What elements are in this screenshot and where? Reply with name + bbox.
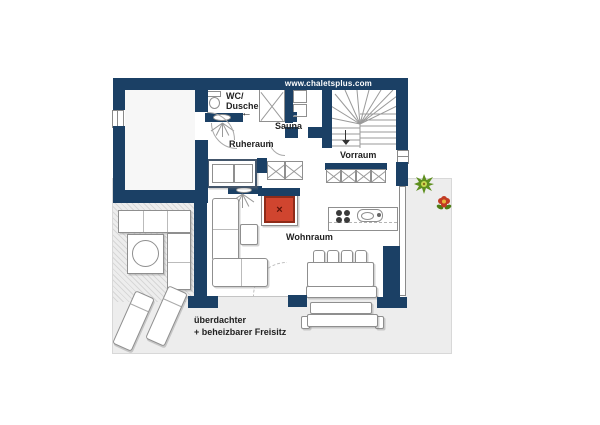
wall [383,246,400,297]
outdoor-corner-bench-side [167,233,191,290]
terrace-table [310,302,372,314]
wall [195,90,208,112]
wardrobe-small [267,161,303,180]
room-label-wc-line1: WC/ [226,91,259,101]
sofa-chaise [212,198,239,261]
glass-front [399,186,406,296]
dining-table [307,262,374,287]
terrace-label-line2: + beheizbarer Freisitz [194,326,286,338]
stove-top-bar [258,188,300,196]
dining-bench-inner [306,286,377,298]
room-label-wohnraum: Wohnraum [286,232,333,242]
stove-burner-icon [344,217,350,223]
wall [322,90,332,148]
staircase [331,90,397,148]
wardrobe-vorraum [326,169,386,183]
room-label-wc: WC/ Dusche [226,91,259,111]
ruheraum-lounger [207,159,257,188]
wall [257,158,267,173]
wood-stove: × [264,196,295,223]
stove-burner-icon [336,210,342,216]
outdoor-corner-bench-top [118,210,191,233]
shower [259,89,285,122]
sofa-base [212,258,268,287]
wall [288,295,307,307]
wall [285,88,293,123]
stairs-direction-arrow [345,130,346,140]
room-label-ruheraum: Ruheraum [229,139,274,149]
wall [195,140,208,190]
wall [396,78,408,150]
toilet-bowl [209,97,220,109]
floorplan-page: { "header": { "url_label": "www.chaletsp… [0,0,600,425]
side-table [240,224,258,245]
plant-icon [414,174,434,194]
storage-room-floor [125,90,195,190]
sauna-bench [293,90,307,103]
wall [194,190,207,296]
room-label-wc-line2: Dusche [226,101,259,111]
outdoor-round-table [132,240,159,267]
terrace-label: überdachter + beheizbarer Freisitz [194,314,286,338]
website-url: www.chaletsplus.com [285,79,372,88]
kitchen-sink [357,209,383,222]
room-label-vorraum: Vorraum [340,150,376,160]
wall [377,297,407,308]
wall [188,296,218,308]
terrace-bench [307,314,378,327]
room-label-sauna: Sauna [275,121,302,131]
top-wall-header: www.chaletsplus.com [113,78,408,90]
wall [113,90,125,110]
stove-burner-icon [344,210,350,216]
stairs-arrow-head-icon [342,140,350,145]
wall [396,162,408,186]
stove-burner-icon [336,217,342,223]
terrace-label-line1: überdachter [194,314,286,326]
flower-icon [436,195,452,211]
